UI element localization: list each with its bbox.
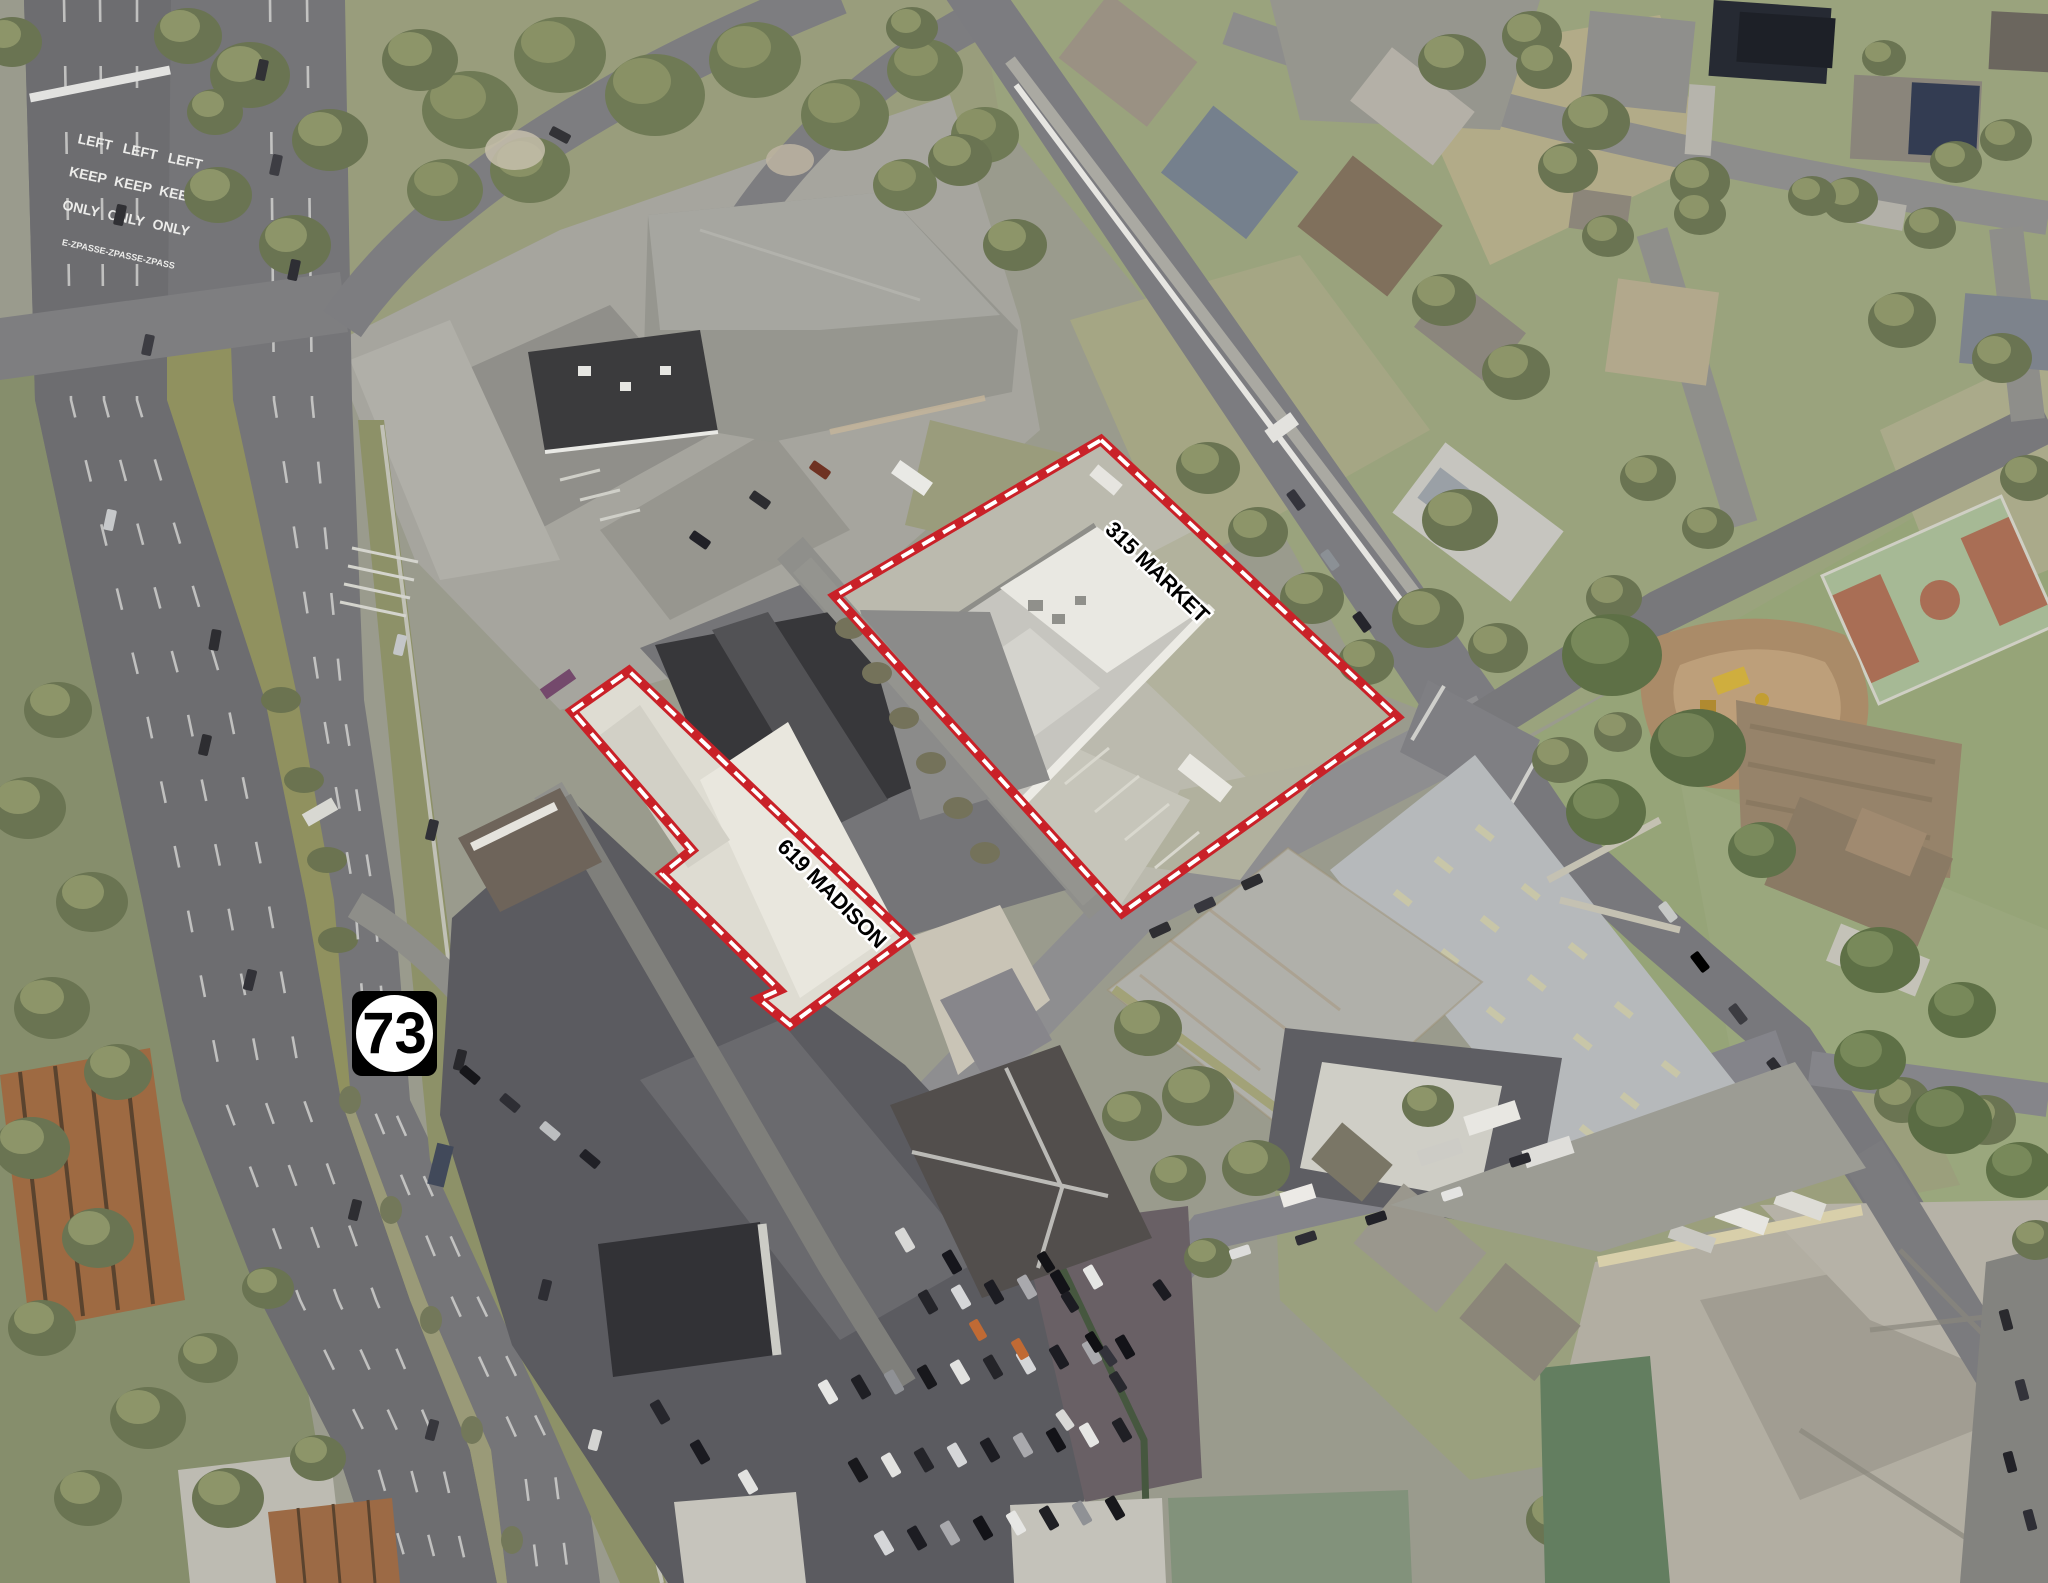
svg-text:73: 73 (362, 1001, 427, 1066)
